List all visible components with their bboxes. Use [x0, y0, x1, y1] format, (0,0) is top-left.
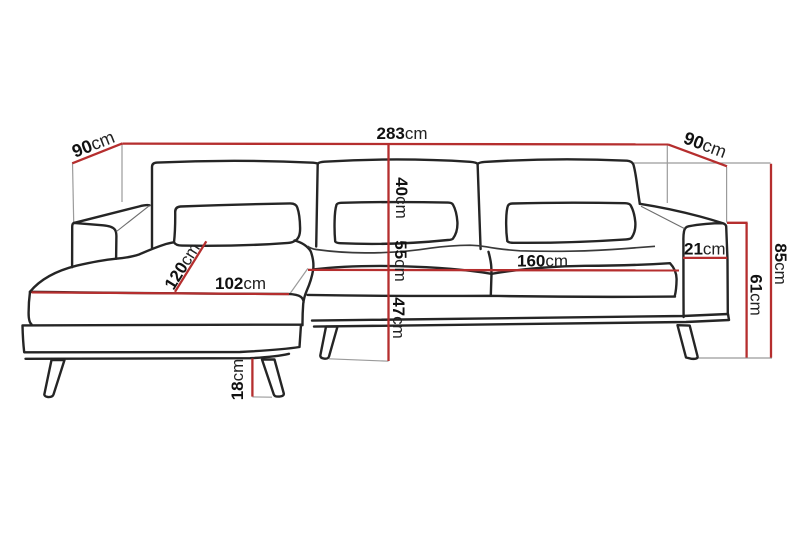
svg-text:18cm: 18cm [228, 359, 247, 401]
svg-text:61cm: 61cm [747, 274, 766, 316]
svg-text:85cm: 85cm [771, 243, 790, 285]
svg-text:47cm: 47cm [389, 297, 408, 339]
svg-text:21cm: 21cm [684, 240, 726, 259]
svg-text:283cm: 283cm [377, 124, 428, 143]
svg-text:55cm: 55cm [391, 240, 410, 282]
svg-text:160cm: 160cm [517, 252, 568, 271]
svg-text:40cm: 40cm [392, 177, 411, 219]
svg-text:102cm: 102cm [215, 274, 266, 293]
